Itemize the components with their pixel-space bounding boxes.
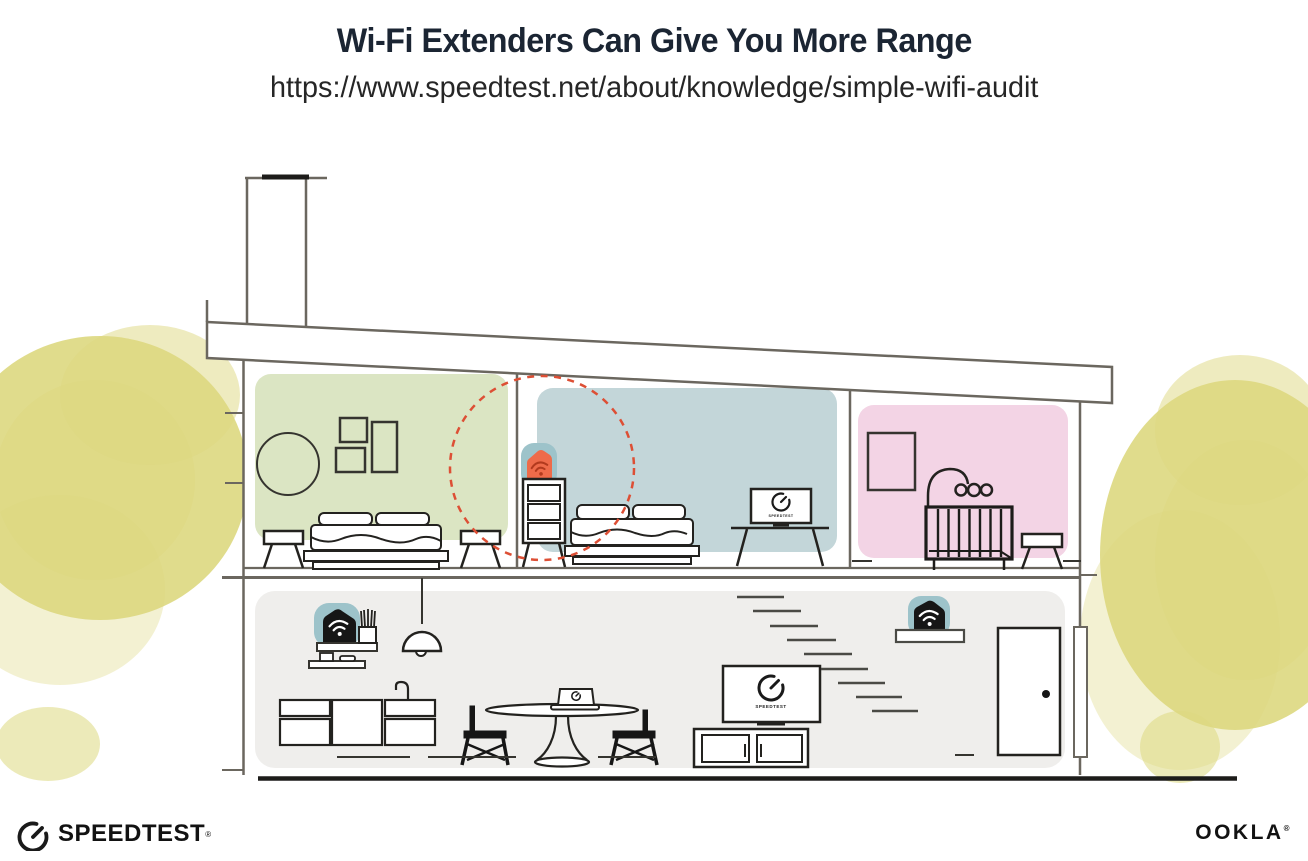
bowl (340, 656, 355, 661)
door-knob (1042, 690, 1050, 698)
cup (320, 653, 333, 661)
entry-door (998, 628, 1060, 755)
ookla-wordmark: OOKLA (1195, 821, 1283, 844)
ookla-logo: OOKLA® (1195, 821, 1292, 845)
bedroom-green (255, 374, 508, 569)
bedroom-blue: SPEEDTEST (521, 388, 837, 567)
downspout (1074, 627, 1087, 757)
registered-mark: ® (1284, 824, 1292, 833)
house-illustration: SPEEDTEST (0, 0, 1308, 861)
speedtest-gauge-icon (16, 817, 50, 851)
living-tv-label: SPEEDTEST (755, 704, 786, 709)
bedroom-tv-label: SPEEDTEST (769, 514, 794, 518)
chimney (245, 177, 327, 335)
speedtest-logo: SPEEDTEST® (16, 817, 211, 851)
media-console (694, 729, 808, 767)
speedtest-wordmark: SPEEDTEST (58, 820, 205, 848)
foliage-right (1080, 355, 1308, 783)
foliage-left (0, 325, 248, 781)
bed-blue (565, 505, 699, 564)
bed-green (304, 513, 448, 569)
ground-floor: SPEEDTEST (255, 578, 1065, 768)
registered-mark: ® (205, 830, 211, 839)
nursery-pink (852, 405, 1081, 570)
infographic-page: Wi-Fi Extenders Can Give You More Range … (0, 0, 1308, 861)
footer: SPEEDTEST® OOKLA® (0, 807, 1308, 855)
